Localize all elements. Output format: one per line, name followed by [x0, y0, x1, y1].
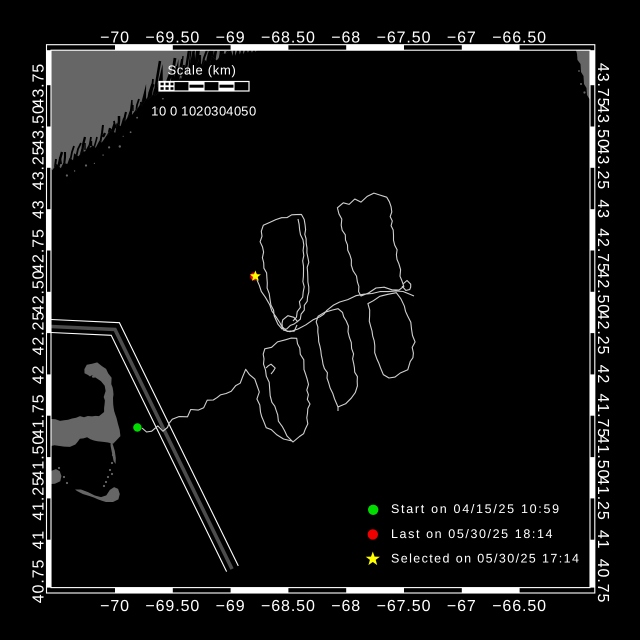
svg-text:43.25: 43.25	[594, 146, 611, 191]
svg-text:43.75: 43.75	[594, 63, 611, 108]
svg-text:−67: −67	[447, 598, 477, 615]
svg-text:41.25: 41.25	[31, 476, 48, 521]
svg-text:40: 40	[226, 104, 242, 119]
svg-text:40.75: 40.75	[594, 559, 611, 604]
svg-text:43: 43	[31, 199, 48, 219]
svg-text:Scale (km): Scale (km)	[167, 63, 236, 78]
svg-text:40.75: 40.75	[31, 559, 48, 604]
svg-text:−66.50: −66.50	[492, 598, 547, 615]
svg-text:−70: −70	[100, 30, 130, 47]
svg-text:−69.50: −69.50	[145, 598, 200, 615]
svg-text:42: 42	[31, 365, 48, 385]
svg-text:41.75: 41.75	[31, 394, 48, 439]
svg-text:20: 20	[196, 104, 212, 119]
svg-text:30: 30	[211, 104, 227, 119]
svg-text:−67.50: −67.50	[377, 598, 432, 615]
svg-text:41.75: 41.75	[594, 394, 611, 439]
svg-text:−67: −67	[447, 30, 477, 47]
svg-text:−68: −68	[331, 30, 361, 47]
svg-text:43: 43	[594, 199, 611, 219]
svg-text:−69: −69	[216, 598, 246, 615]
svg-text:10: 10	[181, 104, 197, 119]
svg-text:42.50: 42.50	[31, 270, 48, 315]
svg-text:41.25: 41.25	[594, 476, 611, 521]
svg-text:42.75: 42.75	[31, 228, 48, 273]
svg-text:Last on 05/30/25 18:14: Last on 05/30/25 18:14	[391, 527, 554, 541]
svg-text:−66.50: −66.50	[492, 30, 547, 47]
svg-text:41: 41	[31, 530, 48, 550]
svg-text:43.25: 43.25	[31, 146, 48, 191]
svg-text:42.50: 42.50	[594, 270, 611, 315]
svg-text:−68.50: −68.50	[261, 30, 316, 47]
svg-text:0: 0	[170, 104, 178, 119]
svg-text:42.75: 42.75	[594, 228, 611, 273]
svg-text:41.50: 41.50	[31, 435, 48, 480]
svg-text:Selected on 05/30/25 17:14: Selected on 05/30/25 17:14	[391, 552, 580, 566]
svg-text:43.75: 43.75	[31, 63, 48, 108]
svg-text:−69: −69	[216, 30, 246, 47]
svg-text:42.25: 42.25	[594, 311, 611, 356]
svg-text:−68.50: −68.50	[261, 598, 316, 615]
svg-text:−69.50: −69.50	[145, 30, 200, 47]
svg-text:10: 10	[151, 104, 167, 119]
svg-text:41: 41	[594, 530, 611, 550]
svg-text:−70: −70	[100, 598, 130, 615]
svg-text:42.25: 42.25	[31, 311, 48, 356]
svg-text:50: 50	[241, 104, 257, 119]
svg-text:−67.50: −67.50	[377, 30, 432, 47]
svg-text:42: 42	[594, 365, 611, 385]
svg-text:Start on 04/15/25 10:59: Start on 04/15/25 10:59	[391, 502, 561, 516]
svg-text:43.50: 43.50	[31, 104, 48, 149]
svg-text:43.50: 43.50	[594, 104, 611, 149]
svg-text:41.50: 41.50	[594, 435, 611, 480]
svg-text:−68: −68	[331, 598, 361, 615]
